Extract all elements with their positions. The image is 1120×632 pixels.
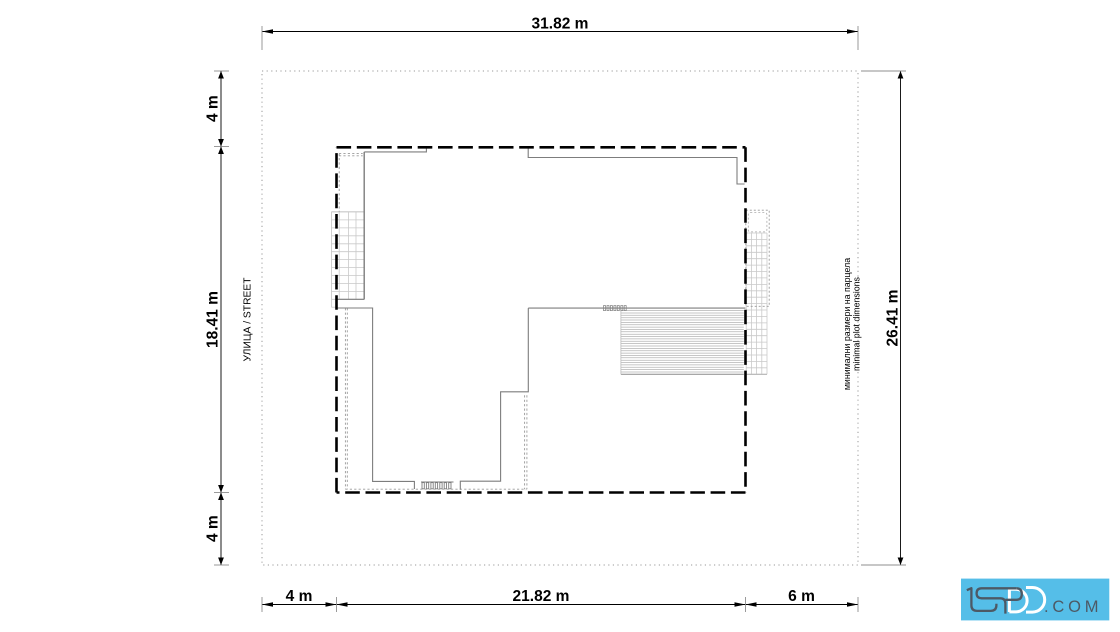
svg-text:18.41 m: 18.41 m xyxy=(205,291,222,348)
svg-text:6 m: 6 m xyxy=(788,588,815,605)
svg-text:4 m: 4 m xyxy=(205,515,222,542)
svg-text:31.82 m: 31.82 m xyxy=(532,16,589,33)
svg-text:26.41 m: 26.41 m xyxy=(885,290,902,347)
svg-text:минимални размери на парцела: минимални размери на парцела xyxy=(842,258,852,390)
svg-text:4 m: 4 m xyxy=(286,588,313,605)
svg-text:21.82 m: 21.82 m xyxy=(513,588,570,605)
svg-text:.COM: .COM xyxy=(1044,598,1102,616)
svg-text:minimal plot dimensions: minimal plot dimensions xyxy=(852,276,862,370)
svg-text:4 m: 4 m xyxy=(205,95,222,122)
svg-text:УЛИЦА / STREET: УЛИЦА / STREET xyxy=(243,277,254,362)
